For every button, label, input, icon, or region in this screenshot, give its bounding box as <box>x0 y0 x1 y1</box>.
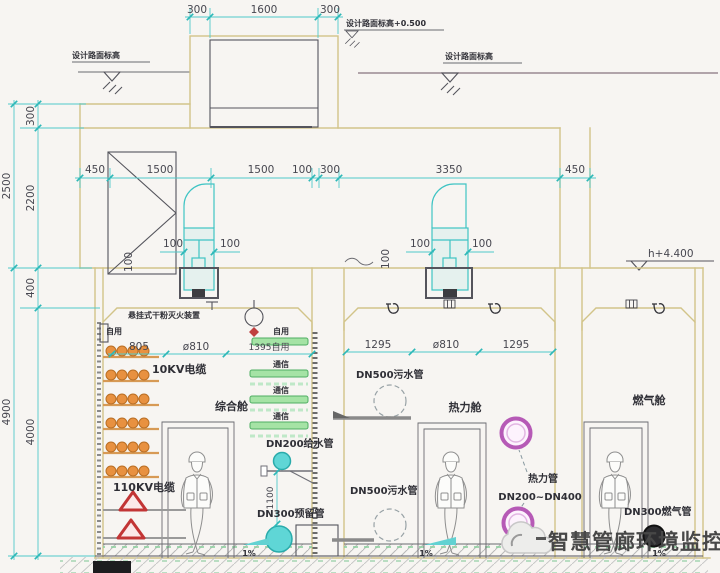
ceiling-dim-100: 100 <box>380 249 392 269</box>
slope-label-2: 1% <box>419 549 433 558</box>
dim-shaft-mid: 1600 <box>251 4 278 16</box>
dim-left-2500: 2500 <box>1 173 13 200</box>
sewage-lower-label: DN500污水管 <box>350 484 418 497</box>
dim-top-1500b: 1500 <box>248 164 275 176</box>
heat-pipe-label-2: DN200~DN400 <box>498 492 582 503</box>
road-level-label-right: 设计路面标高 <box>445 51 493 61</box>
dim-cabin2-1295a: 1295 <box>365 339 392 351</box>
sewage-pipe-upper <box>374 385 406 417</box>
water-pipe-dn200 <box>261 453 313 484</box>
cable-trays-10kv <box>103 346 159 477</box>
fire-device-label: 悬挂式干粉灭火装置 <box>127 310 200 320</box>
fan-unit-left: 100 100 <box>160 184 240 298</box>
louvre-dim-100: 100 <box>123 252 135 272</box>
dim-left-4000: 4000 <box>25 419 37 446</box>
dim-top-300: 300 <box>320 164 340 176</box>
roof-elevation-marker: h+4.400 <box>626 248 714 270</box>
dimension-cabin2-chain: 1295 ø810 1295 <box>343 339 556 355</box>
dimension-top-chain: 450 1500 1500 100 300 3350 450 <box>75 164 596 188</box>
dim-top-3350: 3350 <box>436 164 463 176</box>
worker-figure-1 <box>181 452 212 555</box>
cabin2-name: 热力舱 <box>449 400 483 414</box>
dim-left-400: 400 <box>25 278 37 298</box>
dim-cabin2-810: ø810 <box>433 339 459 351</box>
dim-shaft-left: 300 <box>187 4 207 16</box>
dim-cabin2-1295b: 1295 <box>503 339 530 351</box>
dim-left-300: 300 <box>25 106 37 126</box>
cabin2-labels: DN500污水管 热力舱 DN500污水管 热力管 DN200~DN400 1% <box>350 368 582 558</box>
dim-riser-1100: 1100 <box>266 486 276 509</box>
self-use-label-right: 自用 <box>273 326 289 336</box>
fan-unit-right: 100 100 <box>406 184 494 298</box>
road-level-label-left: 设计路面标高 <box>72 50 120 60</box>
cabin3-outline <box>582 308 695 558</box>
sewage-pipe-lower <box>374 509 406 541</box>
cable-110kv-label: 110KV电缆 <box>113 480 175 494</box>
vent-shaft <box>190 36 338 128</box>
ground-levels: 设计路面标高 设计路面标高 设计路面标高+0.500 h+4.400 <box>72 18 718 270</box>
fan-left-dim-l: 100 <box>163 238 183 250</box>
slope-arrow-1 <box>243 538 269 545</box>
dim-top-450b: 450 <box>565 164 585 176</box>
dimension-cabin1-chain: 805 ø810 1395自用 <box>108 341 315 357</box>
dim-cabin1-810: ø810 <box>183 341 209 353</box>
dim-cabin1-805: 805 <box>129 341 149 353</box>
cable-trays-110kv <box>103 492 186 538</box>
reserved-pipe-label: DN300预留管 <box>257 507 325 520</box>
tunnel-cross-section-drawing: 设计路面标高 设计路面标高 设计路面标高+0.500 h+4.400 <box>0 0 720 573</box>
watermark-text: 智慧管廊环境监控 <box>548 530 720 554</box>
dim-left-4900: 4900 <box>1 399 13 426</box>
dim-top-1500a: 1500 <box>147 164 174 176</box>
fire-extinguisher <box>206 300 263 337</box>
ceiling-offset-dim: 100 <box>345 249 392 269</box>
cabin1-name: 综合舱 <box>215 399 249 413</box>
shaft-top-level-label: 设计路面标高+0.500 <box>346 18 426 28</box>
roof-elevation-label: h+4.400 <box>648 248 694 260</box>
logo-dash <box>536 537 546 540</box>
dimension-shaft-chain: 300 1600 300 <box>185 4 343 38</box>
gas-pipe-label: DN300燃气管 <box>624 505 692 518</box>
fan-left-dim-r: 100 <box>220 238 240 250</box>
heat-pipe-label-1: 热力管 <box>528 472 558 485</box>
drawing-canvas: 设计路面标高 设计路面标高 设计路面标高+0.500 h+4.400 <box>0 0 720 573</box>
fan-right-dim-l: 100 <box>410 238 430 250</box>
comm-label-2: 通信 <box>273 385 289 395</box>
cabin2-contents <box>332 300 533 545</box>
dim-shaft-right: 300 <box>320 4 340 16</box>
dim-left-2200: 2200 <box>25 185 37 212</box>
watermark: 智慧管廊环境监控 <box>502 522 720 554</box>
sewage-upper-label: DN500污水管 <box>356 368 424 381</box>
self-use-label-left: 自用 <box>106 326 122 336</box>
water-pipe-label: DN200给水管 <box>266 437 334 450</box>
cabin3-name: 燃气舱 <box>632 393 667 407</box>
cable-10kv-label: 10KV电缆 <box>152 362 206 376</box>
slope-label-1: 1% <box>242 549 256 558</box>
comm-label-1: 通信 <box>273 359 289 369</box>
comm-label-3: 通信 <box>273 411 289 421</box>
fan-right-dim-r: 100 <box>472 238 492 250</box>
dim-top-100: 100 <box>292 164 312 176</box>
dim-cabin1-1395: 1395自用 <box>249 341 290 353</box>
dim-top-450a: 450 <box>85 164 105 176</box>
